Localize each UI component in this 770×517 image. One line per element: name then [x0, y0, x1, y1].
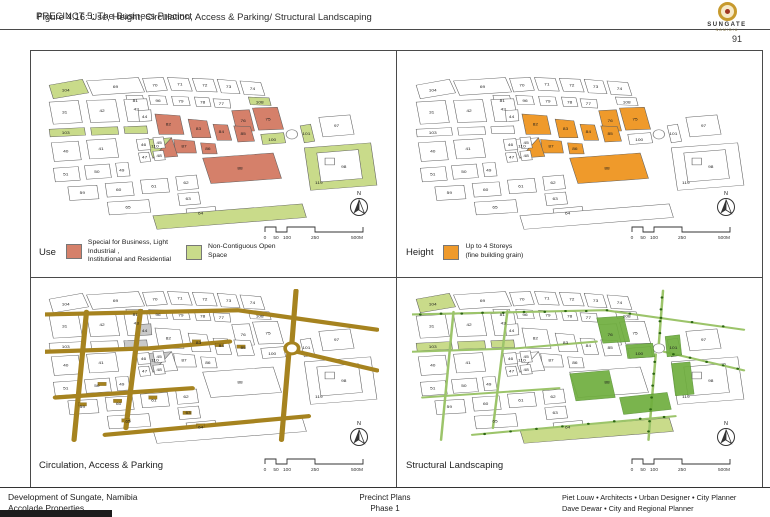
parcel-label: 77: [219, 102, 225, 106]
parcel-label: 41: [98, 361, 104, 365]
parcel-label: 79: [545, 99, 551, 103]
parcel-label: 73: [593, 299, 599, 303]
parcel-label: 86: [205, 147, 211, 151]
page-title: PRECINCT 5: The Business Precinct Figure…: [36, 11, 676, 27]
north-arrow-svg: N: [347, 189, 371, 221]
svg-text:500M: 500M: [351, 235, 363, 241]
parcel-label: 98: [708, 164, 714, 168]
parcel-label: 84: [586, 344, 592, 348]
svg-text:250: 250: [311, 235, 319, 241]
parcel-label: 83: [196, 126, 202, 130]
svg-text:500M: 500M: [718, 235, 730, 241]
parcel-label: 46: [141, 142, 147, 146]
parcel-label: 63: [552, 411, 558, 415]
parcel-label: 59: [80, 405, 86, 409]
parcel-label: 84: [219, 344, 225, 348]
parcel-label: 49: [119, 382, 125, 386]
parcel-label: 31: [429, 110, 435, 114]
parcel-label: 41: [465, 147, 471, 151]
parcel-label: 62: [550, 180, 556, 184]
svg-text:N: N: [724, 421, 728, 427]
parcel-label: 50: [94, 383, 100, 387]
legend-text: Special for Business, Light Industrial ,…: [88, 239, 176, 265]
parcel-label: 96: [155, 98, 161, 102]
parcel-label: 50: [94, 169, 100, 173]
parcel-label: 45: [523, 141, 529, 145]
parcel-label: 104: [62, 88, 71, 92]
parcel-label: 83: [563, 126, 569, 130]
parcel-label: 49: [486, 168, 492, 172]
legend-text: Up to 4 Storeys(fine building grain): [465, 243, 523, 261]
parcel-label: 87: [548, 144, 554, 148]
parcel-label: 70: [519, 83, 525, 87]
parcel-label: 83: [196, 340, 202, 344]
scale-bar-svg: 050100250500M: [626, 451, 744, 475]
landscaping-map: 1046970717273741088196797877757631424344…: [412, 289, 746, 445]
parcel-p98: [684, 150, 730, 182]
height-legend: Height Up to 4 Storeys(fine building gra…: [406, 235, 640, 269]
parcel-label: 101: [302, 131, 311, 135]
parcel-label: 108: [623, 100, 632, 104]
parcel-label: 40: [430, 363, 436, 367]
sungate-logo: SUNGATE NAMIBIA: [699, 2, 755, 32]
parcel-label: 48: [523, 367, 529, 371]
parcel-label: 79: [545, 313, 551, 317]
parcel-label: 78: [200, 100, 206, 104]
figure-frame: 1046970717273741088196797877757631424344…: [30, 50, 763, 488]
parcel-s2: [491, 126, 515, 134]
parcel-label: 45: [156, 355, 162, 359]
parcel-label: 97: [701, 338, 707, 342]
parcel-label: 31: [62, 110, 68, 114]
scale-bar: 050100250500M: [259, 451, 377, 475]
legend-text: Non-Contiguous Open Space: [208, 243, 276, 261]
parcel-label: 69: [480, 85, 486, 89]
parcel-label: 86: [572, 361, 578, 365]
parcel-label: 44: [509, 114, 515, 118]
parcel-label: 83: [563, 340, 569, 344]
panel-circulation: 1046970717273741088196797877757631424344…: [31, 279, 396, 485]
footer-credits-line1: Piet Louw • Architects • Urban Designer …: [562, 493, 736, 504]
circulation-legend: Circulation, Access & Parking: [39, 455, 256, 475]
parcel-label: 97: [701, 124, 707, 128]
parcel-label: 74: [250, 300, 256, 304]
parcel-label: 81: [500, 98, 506, 102]
parcel-label: 88: [237, 166, 243, 170]
parcel-label: 87: [548, 358, 554, 362]
parcel-p98: [317, 150, 363, 182]
parcel-label: 104: [62, 302, 71, 306]
logo-emblem-icon: [718, 2, 737, 21]
parcel-label: 97: [334, 338, 340, 342]
parcel-label: 69: [113, 299, 119, 303]
parcel-label: 49: [119, 168, 125, 172]
parcel-label: 79: [178, 99, 184, 103]
parcel-label: 65: [125, 205, 131, 209]
parcel-label: 48: [156, 153, 162, 157]
parcel-label: 59: [447, 191, 453, 195]
parcel-label: 40: [63, 363, 69, 367]
height-map-svg: 1046970717273741088196797877757631424344…: [412, 75, 746, 231]
parcel-label: 59: [447, 405, 453, 409]
svg-text:500M: 500M: [351, 467, 363, 473]
parcel-label: 79: [178, 313, 184, 317]
parcel-label: 60: [483, 187, 489, 191]
parcel-label: 119: [682, 180, 690, 184]
report-page: PRECINCT 5: The Business Precinct Figure…: [0, 0, 770, 517]
parcel-s1: [91, 127, 119, 135]
parcel-label: 72: [569, 83, 575, 87]
parcel-label: 42: [466, 322, 472, 326]
parcel-label: 41: [98, 147, 104, 151]
parcel-label: 63: [185, 197, 191, 201]
north-arrow-icon: N: [347, 419, 371, 451]
parcel-label: 84: [219, 130, 225, 134]
svg-text:100: 100: [650, 235, 658, 241]
north-arrow-svg: N: [714, 419, 738, 451]
parcel-s1: [458, 341, 486, 349]
parcel-label: 31: [429, 324, 435, 328]
parcel-label: 88: [604, 166, 610, 170]
parcel-label: 103: [62, 130, 71, 134]
title-overlay-figure: Figure 4.16: Use, Height, Circulation, A…: [37, 12, 372, 23]
parcel-label: 70: [152, 83, 158, 87]
parcel-label: 96: [522, 312, 528, 316]
parcel-label: 104: [429, 302, 438, 306]
parcel-label: 43: [501, 321, 507, 325]
parcel-label: 88: [237, 380, 243, 384]
parcel-label: 51: [430, 172, 436, 176]
parcel-label: 72: [569, 297, 575, 301]
svg-text:500M: 500M: [718, 467, 730, 473]
parcel-label: 64: [198, 211, 204, 215]
svg-text:250: 250: [678, 467, 686, 473]
svg-text:0: 0: [264, 467, 267, 473]
parcel-label: 44: [142, 328, 148, 332]
parcel-label: 100: [635, 137, 644, 141]
legend-item-0: Up to 4 Storeys(fine building grain): [443, 243, 523, 261]
parcel-label: 96: [522, 98, 528, 102]
parcel-label: 49: [486, 382, 492, 386]
svg-text:N: N: [724, 191, 728, 197]
north-arrow-icon: N: [347, 189, 371, 221]
parcel-label: 104: [429, 88, 438, 92]
parcel-label: 108: [256, 100, 265, 104]
parcel-label: 71: [177, 82, 183, 86]
parcel-label: 74: [617, 300, 623, 304]
parcel-label: 43: [134, 321, 140, 325]
parcel-label: 42: [99, 322, 105, 326]
parcel-label: 103: [62, 344, 71, 348]
panel-label-height: Height: [406, 247, 433, 258]
parcel-label: 61: [518, 398, 524, 402]
scan-edge-artifact: [0, 510, 112, 517]
parcel-label: 71: [177, 296, 183, 300]
parcel-label: 98: [708, 378, 714, 382]
footer-credits-line2: Dave Dewar • City and Regional Planner: [562, 504, 736, 515]
parcel-label: 81: [133, 312, 139, 316]
parcel-label: 40: [63, 149, 69, 153]
parcel-label: 75: [265, 117, 271, 121]
parcel-label: 81: [133, 98, 139, 102]
parcel-label: 85: [607, 345, 613, 349]
vertical-divider: [396, 51, 397, 487]
parcel-label: 73: [593, 85, 599, 89]
svg-text:N: N: [357, 191, 361, 197]
parcel-label: 42: [466, 108, 472, 112]
legend-item-0: Special for Business, Light Industrial ,…: [66, 239, 176, 265]
parcel-label: 77: [586, 316, 592, 320]
parcel-label: 70: [519, 297, 525, 301]
scale-bar-svg: 050100250500M: [259, 219, 377, 243]
parcel-label: 51: [63, 172, 69, 176]
parcel-label: 64: [198, 425, 204, 429]
parcel-label: 87: [181, 144, 187, 148]
parcel-label: 73: [226, 85, 232, 89]
parcel-label: 98: [341, 164, 347, 168]
parcel-label: 103: [429, 344, 438, 348]
parcel-label: 75: [632, 117, 638, 121]
parcel-label: 78: [567, 314, 573, 318]
panel-landscaping: 1046970717273741088196797877757631424344…: [398, 279, 760, 485]
scale-bar: 050100250500M: [626, 219, 744, 243]
footer: Development of Sungate, Namibia Accolade…: [0, 487, 770, 517]
parcel-label: 41: [465, 361, 471, 365]
parcel-label: 100: [268, 137, 277, 141]
parcel-label: 100: [635, 351, 644, 355]
svg-text:100: 100: [283, 235, 291, 241]
parcel-label: 50: [461, 169, 467, 173]
parcel-label: 82: [166, 336, 172, 340]
parcel-label: 71: [544, 82, 550, 86]
parcel-label: 61: [151, 398, 157, 402]
parcel-label: 74: [617, 86, 623, 90]
page-number: 91: [732, 34, 742, 44]
parcel-label: 76: [607, 119, 613, 123]
parcel-label: 47: [142, 155, 148, 159]
parcel-label: 65: [492, 419, 498, 423]
panel-use: 1046970717273741088196797877757631424344…: [31, 51, 396, 277]
parcel-label: 76: [240, 333, 246, 337]
parcel-label: 61: [151, 184, 157, 188]
logo-subtitle: NAMIBIA: [699, 28, 755, 32]
parcel-label: 62: [183, 180, 189, 184]
parcel-label: 69: [480, 299, 486, 303]
parcel-label: 74: [250, 86, 256, 90]
parcel-label: 82: [533, 122, 539, 126]
parcel-label: 85: [607, 131, 613, 135]
parcel-label: 81: [500, 312, 506, 316]
parcel-label: 61: [518, 184, 524, 188]
parcel-label: 101: [302, 345, 311, 349]
legend-swatch: [186, 245, 202, 260]
parcel-label: 62: [550, 394, 556, 398]
parcel-label: 98: [341, 378, 347, 382]
parcel-label: 46: [508, 142, 514, 146]
svg-text:0: 0: [631, 467, 634, 473]
parcel-label: 77: [586, 102, 592, 106]
parcel-label: 63: [552, 197, 558, 201]
legend-swatch: [66, 244, 82, 259]
parcel-label: 86: [572, 147, 578, 151]
parcel-p98: [317, 364, 363, 396]
north-arrow-icon: N: [714, 189, 738, 221]
height-map: 1046970717273741088196797877757631424344…: [412, 75, 746, 231]
parcel-label: 82: [533, 336, 539, 340]
parcel-label: 70: [152, 297, 158, 301]
parcel-label: 48: [156, 367, 162, 371]
svg-text:250: 250: [678, 235, 686, 241]
parcel-label: 119: [315, 394, 323, 398]
parcel-label: 47: [509, 155, 515, 159]
footer-credits: Piet Louw • Architects • Urban Designer …: [562, 493, 736, 514]
parcel-label: 78: [200, 314, 206, 318]
parcel-label: 85: [240, 131, 246, 135]
parcel-label: 60: [483, 401, 489, 405]
panel-height: 1046970717273741088196797877757631424344…: [398, 51, 760, 277]
north-arrow-svg: N: [714, 189, 738, 221]
parcel-s1: [458, 127, 486, 135]
parcel-s2: [124, 126, 148, 134]
parcel-label: 86: [205, 361, 211, 365]
circulation-map: 1046970717273741088196797877757631424344…: [45, 289, 379, 445]
parcel-label: 42: [99, 108, 105, 112]
parcel-label: 87: [181, 358, 187, 362]
parcel-label: 69: [113, 85, 119, 89]
use-map: 1046970717273741088196797877757631424344…: [45, 75, 379, 231]
parcel-label: 62: [183, 394, 189, 398]
parcel-label: 72: [202, 83, 208, 87]
parcel-label: 78: [567, 100, 573, 104]
scale-bar-svg: 050100250500M: [626, 219, 744, 243]
circulation-map-svg: 1046970717273741088196797877757631424344…: [45, 289, 379, 445]
parcel-label: 46: [508, 356, 514, 360]
parcel-label: 119: [315, 180, 323, 184]
parcel-label: 40: [430, 149, 436, 153]
parcel-label: 65: [492, 205, 498, 209]
parcel-label: 71: [544, 296, 550, 300]
parcel-label: 64: [565, 211, 571, 215]
svg-text:50: 50: [640, 467, 646, 473]
svg-text:50: 50: [273, 467, 279, 473]
parcel-label: 45: [156, 141, 162, 145]
parcel-label: 96: [155, 312, 161, 316]
legend-item-1: Non-Contiguous Open Space: [186, 243, 276, 261]
scale-bar: 050100250500M: [259, 219, 377, 243]
parcel-label: 75: [632, 331, 638, 335]
parcel-label: 50: [461, 383, 467, 387]
parcel-label: 65: [125, 419, 131, 423]
parcel-label: 45: [523, 355, 529, 359]
parcel-label: 85: [240, 345, 246, 349]
parcel-label: 44: [142, 114, 148, 118]
parcel-label: 108: [623, 314, 632, 318]
landscaping-legend: Structural Landscaping: [406, 455, 620, 475]
parcel-label: 73: [226, 299, 232, 303]
parcel-label: 76: [240, 119, 246, 123]
parcel-label: 59: [80, 191, 86, 195]
north-arrow-icon: N: [714, 419, 738, 451]
parcel-label: 47: [142, 369, 148, 373]
parcel-label: 76: [607, 333, 613, 337]
parcel-label: 64: [565, 425, 571, 429]
parcel-label: 47: [509, 369, 515, 373]
svg-text:100: 100: [650, 467, 658, 473]
parcel-label: 44: [509, 328, 515, 332]
north-arrow-svg: N: [347, 419, 371, 451]
parcel-label: 43: [501, 107, 507, 111]
parcel-label: 51: [63, 386, 69, 390]
panel-label-circulation: Circulation, Access & Parking: [39, 460, 163, 471]
parcel-label: 84: [586, 130, 592, 134]
parcel-label: 48: [523, 153, 529, 157]
use-map-svg: 1046970717273741088196797877757631424344…: [45, 75, 379, 231]
horizontal-divider: [31, 277, 762, 278]
parcel-label: 72: [202, 297, 208, 301]
parcel-label: 60: [116, 187, 122, 191]
svg-text:100: 100: [283, 467, 291, 473]
parcel-label: 82: [166, 122, 172, 126]
use-legend: Use Special for Business, Light Industri…: [39, 235, 276, 269]
parcel-label: 108: [256, 314, 265, 318]
parcel-label: 101: [669, 345, 678, 349]
parcel-label: 46: [141, 356, 147, 360]
parcel-label: 101: [669, 131, 678, 135]
header-rule: [0, 29, 770, 30]
scale-bar: 050100250500M: [626, 451, 744, 475]
parcel-label: 103: [429, 130, 438, 134]
parcel-label: 31: [62, 324, 68, 328]
parcel-label: 75: [265, 331, 271, 335]
panel-label-use: Use: [39, 247, 56, 258]
svg-text:250: 250: [311, 467, 319, 473]
parcel-label: 51: [430, 386, 436, 390]
parcel-label: 60: [116, 401, 122, 405]
legend-swatch: [443, 245, 459, 260]
parcel-label: 97: [334, 124, 340, 128]
parcel-label: 63: [185, 411, 191, 415]
parcel-label: 77: [219, 316, 225, 320]
parcel-label: 100: [268, 351, 277, 355]
parcel-label: 88: [604, 380, 610, 384]
svg-text:50: 50: [640, 235, 646, 241]
parcel-label: 119: [682, 394, 690, 398]
landscaping-map-svg: 1046970717273741088196797877757631424344…: [412, 289, 746, 445]
parcel-label: 43: [134, 107, 140, 111]
svg-text:N: N: [357, 421, 361, 427]
scale-bar-svg: 050100250500M: [259, 451, 377, 475]
panel-label-landscaping: Structural Landscaping: [406, 460, 503, 471]
